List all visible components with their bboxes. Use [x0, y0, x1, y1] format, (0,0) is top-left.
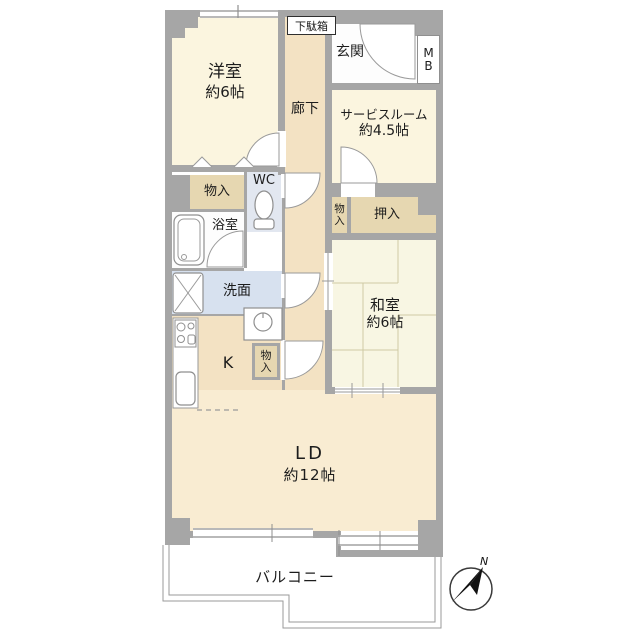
shoe-cabinet-box: 下駄箱 [287, 16, 336, 35]
compass-icon: N [450, 555, 492, 610]
room-western-label: 洋室 約6帖 [180, 60, 270, 104]
storage-hall-label: 物入 [193, 184, 241, 200]
window-japanese-south [338, 530, 418, 556]
bathroom-label: 浴室 [206, 218, 244, 234]
corridor-label: 廊下 [284, 101, 326, 119]
meter-box-label: MB [423, 47, 435, 72]
compass-north-label: N [480, 555, 488, 568]
sink-icon [176, 372, 195, 405]
washing-machine-icon [173, 273, 203, 313]
toilet-icon [254, 191, 274, 229]
wc-label: WC [248, 173, 280, 189]
door-arc-bath [207, 231, 243, 267]
entrance-label: 玄関 [330, 44, 370, 62]
storage-kitchen-label: 物入 [256, 346, 276, 377]
door-arc-ld [285, 341, 323, 379]
storage-tatami-label: 物入 [333, 199, 346, 232]
door-arc-washroom [285, 273, 320, 308]
floorplan-canvas: N 下駄箱 MB 洋室 約6帖 廊下 玄関 サービスルーム 約4.5帖 物入 W… [0, 0, 640, 640]
sliding-door-japanese-s [335, 383, 400, 398]
door-arc-service [341, 147, 377, 183]
living-dining-label: LD 約12帖 [260, 440, 360, 488]
oshiire-label: 押入 [362, 207, 412, 224]
sliding-door-japanese-w [322, 253, 334, 310]
bathtub-icon [174, 215, 204, 265]
service-room-label: サービスルーム 約4.5帖 [334, 104, 434, 144]
washroom-label: 洗面 [215, 283, 259, 300]
window-western-top [200, 5, 278, 18]
door-arc-western [246, 133, 279, 166]
meter-box: MB [417, 35, 440, 84]
balcony-label: バルコニー [250, 567, 340, 587]
vanity-basin-icon [244, 308, 282, 340]
shoe-cabinet-label: 下駄箱 [295, 18, 328, 34]
kitchen-label: K [213, 352, 243, 374]
window-ld-south [193, 524, 313, 542]
bifold-mark-1 [192, 157, 212, 167]
room-japanese-label: 和室 約6帖 [345, 292, 425, 336]
floorplan-linework: N [0, 0, 640, 640]
door-arc-wc [285, 173, 320, 208]
kitchen-counter [173, 318, 198, 408]
